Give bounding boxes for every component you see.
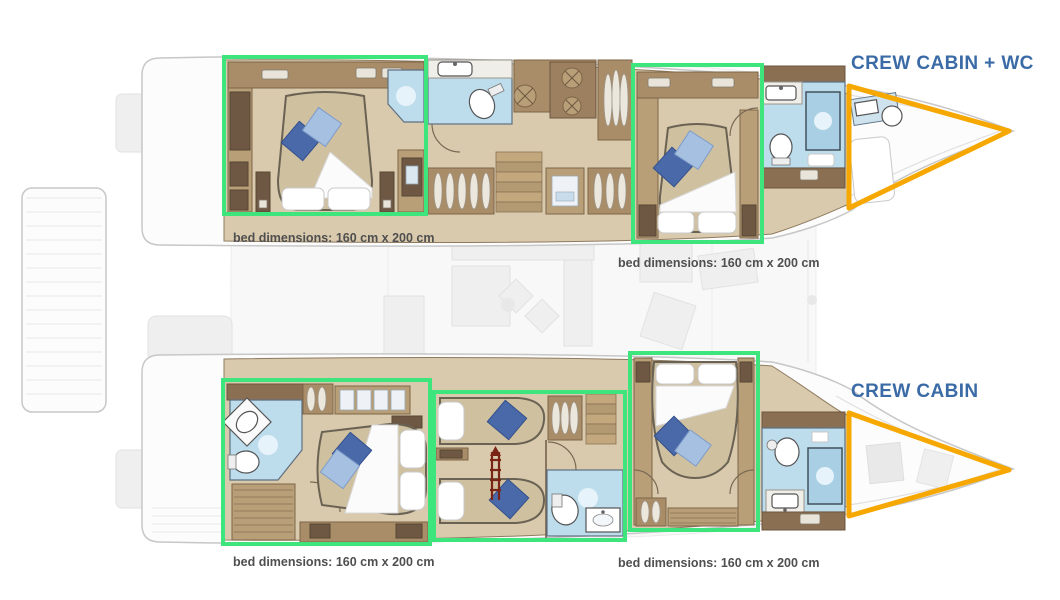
pillow bbox=[438, 402, 464, 440]
pillow bbox=[282, 188, 324, 210]
cabin-port-forward bbox=[637, 72, 758, 238]
bed-dimensions-caption: bed dimensions: 160 cm x 200 cm bbox=[618, 556, 820, 570]
pillow bbox=[328, 188, 370, 210]
caption-prefix: bed dimensions: bbox=[233, 231, 332, 245]
bed-dimensions-caption: bed dimensions: 160 cm x 200 cm bbox=[233, 231, 435, 245]
floor-plan-canvas bbox=[0, 0, 1060, 600]
caption-value: 160 cm x 200 cm bbox=[721, 256, 820, 270]
crew-cabin-label: CREW CABIN bbox=[851, 381, 979, 403]
toilet bbox=[233, 451, 259, 473]
wardrobe-hanging bbox=[548, 396, 582, 440]
caption-value: 160 cm x 200 cm bbox=[336, 231, 435, 245]
wardrobe-hanging bbox=[588, 168, 632, 214]
pillow bbox=[698, 212, 736, 233]
wardrobe-hanging bbox=[303, 384, 333, 414]
caption-prefix: bed dimensions: bbox=[618, 256, 717, 270]
bathroom-starboard-forward bbox=[762, 412, 845, 530]
stern-platform bbox=[22, 94, 148, 508]
caption-value: 160 cm x 200 cm bbox=[336, 555, 435, 569]
crew-berth bbox=[849, 136, 895, 204]
pillow bbox=[400, 472, 425, 510]
toilet bbox=[770, 134, 792, 160]
single-bed bbox=[438, 398, 544, 444]
pillow bbox=[698, 364, 736, 384]
sink bbox=[772, 494, 798, 508]
linen-shelf bbox=[546, 168, 584, 214]
caption-prefix: bed dimensions: bbox=[233, 555, 332, 569]
bed-dimensions-caption: bed dimensions: 160 cm x 200 cm bbox=[233, 555, 435, 569]
pillow bbox=[400, 430, 425, 468]
wardrobe-hanging bbox=[598, 60, 632, 140]
galley-cabinets bbox=[514, 60, 596, 118]
double-bed bbox=[652, 362, 738, 478]
yacht-deck-plan: CREW CABIN + WC CREW CABIN bed dimension… bbox=[0, 0, 1060, 600]
vent-fan-icon bbox=[562, 68, 582, 88]
caption-value: 160 cm x 200 cm bbox=[721, 556, 820, 570]
sink bbox=[593, 514, 613, 526]
stairs bbox=[586, 394, 616, 444]
bed-dimensions-caption: bed dimensions: 160 cm x 200 cm bbox=[618, 256, 820, 270]
sink bbox=[855, 100, 879, 116]
stairs bbox=[496, 152, 542, 212]
double-bed bbox=[278, 92, 372, 210]
caption-prefix: bed dimensions: bbox=[618, 556, 717, 570]
vent-fan-icon bbox=[563, 97, 581, 115]
wardrobe-hanging bbox=[428, 168, 494, 214]
toilet bbox=[775, 438, 799, 466]
teak-bench bbox=[232, 484, 295, 540]
ensuite-bathroom bbox=[547, 470, 623, 536]
double-bed bbox=[653, 124, 736, 233]
pillow bbox=[656, 364, 694, 384]
bathroom-port-forward bbox=[762, 66, 845, 188]
crew-cabin-wc-label: CREW CABIN + WC bbox=[851, 53, 1034, 75]
pillow bbox=[438, 482, 464, 520]
wardrobe-hanging bbox=[636, 498, 666, 526]
linen-shelf bbox=[335, 386, 410, 414]
double-bed bbox=[318, 424, 427, 514]
vent-fan-icon bbox=[514, 85, 536, 107]
pillow bbox=[658, 212, 694, 233]
toilet bbox=[882, 106, 902, 126]
